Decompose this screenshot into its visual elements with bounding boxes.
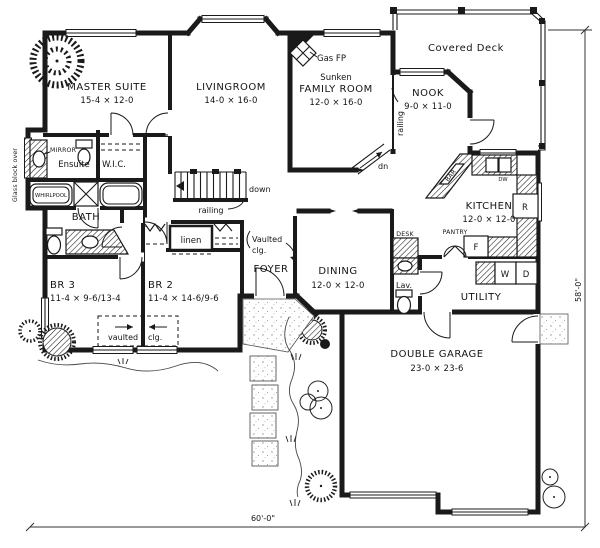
room-dims-nook: 9-0 × 11-0 [404,102,452,112]
room-label-utility: UTILITY [461,292,502,303]
glass-block-note: Glass block over [12,148,19,202]
garage-door [350,492,436,498]
room-label-foyer: FOYER [254,264,289,275]
bifold-door [214,224,232,231]
room-label-wic: W.I.C. [102,160,126,170]
window [202,16,264,23]
garage-door [452,509,528,515]
room-label-garage: DOUBLE GARAGE [390,349,483,360]
room-label-kitchen: KITCHEN [466,201,513,212]
garden-bed-edge [38,360,218,371]
washer-label: W [501,270,510,280]
room-label-ensuite: Ensuite [58,160,90,170]
vaulted-foyer-label-1: Vaulted [252,235,282,244]
vaulted-br-label-2: clg. [148,333,162,342]
window [137,347,177,354]
shrub [300,381,332,419]
room-label-lav: Lav. [396,281,412,290]
gas-fp-label: Gas FP [317,54,346,64]
range-label: R [522,203,528,213]
sink [398,261,412,271]
freezer-label: F [474,243,479,253]
sink [82,236,98,248]
railing-label-nook: railing [396,111,405,136]
dn-label: dn [378,162,388,171]
room-dims-garage: 23-0 × 23-6 [410,364,463,374]
front-porch [243,299,314,352]
room-label-br3: BR 3 [50,280,75,291]
room-label-family-room: FAMILY ROOM [299,84,373,95]
pantry-label: PANTRY [443,229,468,236]
room-dims-master-suite: 15-4 × 12-0 [80,96,133,106]
shower [74,182,98,206]
room-label-dining: DINING [318,266,357,277]
mirror-label: MIRROR [50,147,77,154]
desk-label: DESK [396,231,414,238]
window [93,347,133,354]
railing-label-stairs: railing [198,206,223,215]
shrub [542,469,565,508]
door-arc [146,113,168,135]
shrub [20,321,40,341]
room-label-master-suite: MASTER SUITE [67,82,146,93]
room-dims-livingroom: 14-0 × 16-0 [204,96,257,106]
stepping-stones [250,356,278,466]
tree [33,37,81,85]
room-label-livingroom: LIVINGROOM [196,82,266,93]
desk-counter [393,238,418,258]
sink [486,158,498,172]
dishwasher-label: DW [498,177,508,183]
sink [33,151,45,167]
down-label: down [249,185,271,194]
sink [499,158,511,172]
dryer-label: D [523,270,530,280]
linen-label: linen [181,236,202,246]
gas-fireplace [290,35,317,66]
dimension-depth: 58'-0" [574,278,583,302]
vaulted-foyer-label-2: clg. [252,246,266,255]
shrub [307,472,335,500]
dimension-width: 60'-0" [251,514,275,523]
window [66,30,136,37]
room-dims-br3: 11-4 × 9-6/13-4 [50,294,121,304]
room-label-nook: NOOK [412,88,444,99]
toilet [46,228,62,254]
bathtub [100,183,142,207]
kitchen-counter [488,237,517,257]
room-dims-dining: 12-0 × 12-0 [311,281,364,291]
room-label-covered-deck: Covered Deck [428,43,504,54]
room-label-br2: BR 2 [148,280,173,291]
room-label-family-sunken: Sunken [320,73,351,83]
room-dims-family-room: 12-0 × 16-0 [309,98,362,108]
vaulted-br-label-1: vaulted [108,333,138,342]
window [324,30,380,37]
room-label-bath: BATH [72,212,101,223]
floor-plan-drawing: MASTER SUITE 15-4 × 12-0 LIVINGROOM 14-0… [0,0,600,548]
room-dims-kitchen: 12-0 × 12-0 [462,215,515,225]
room-dims-br2: 11-4 × 14-6/9-6 [148,294,219,304]
side-stoop [540,314,568,344]
stairs-down [175,169,246,209]
window [400,69,444,76]
whirlpool-label: WHIRLPOOL [35,193,67,199]
toilet [396,290,412,314]
